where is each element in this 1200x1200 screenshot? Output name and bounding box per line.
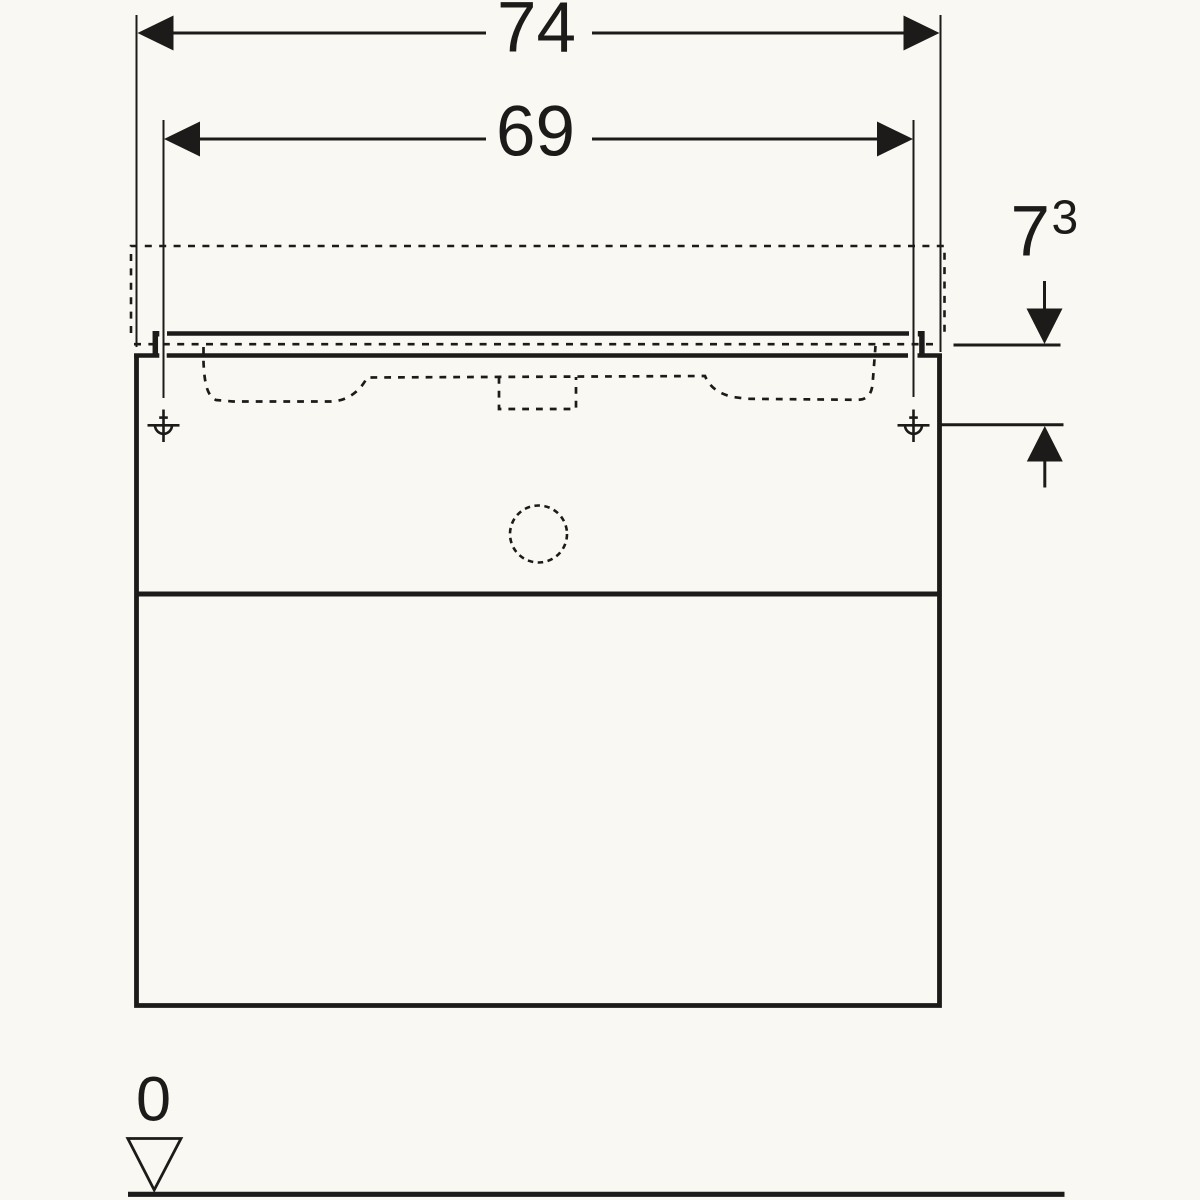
svg-text:74: 74 — [497, 0, 576, 68]
svg-text:7: 7 — [1011, 193, 1051, 272]
svg-text:69: 69 — [496, 93, 575, 172]
svg-text:3: 3 — [1052, 192, 1079, 245]
svg-text:0: 0 — [136, 1065, 171, 1135]
